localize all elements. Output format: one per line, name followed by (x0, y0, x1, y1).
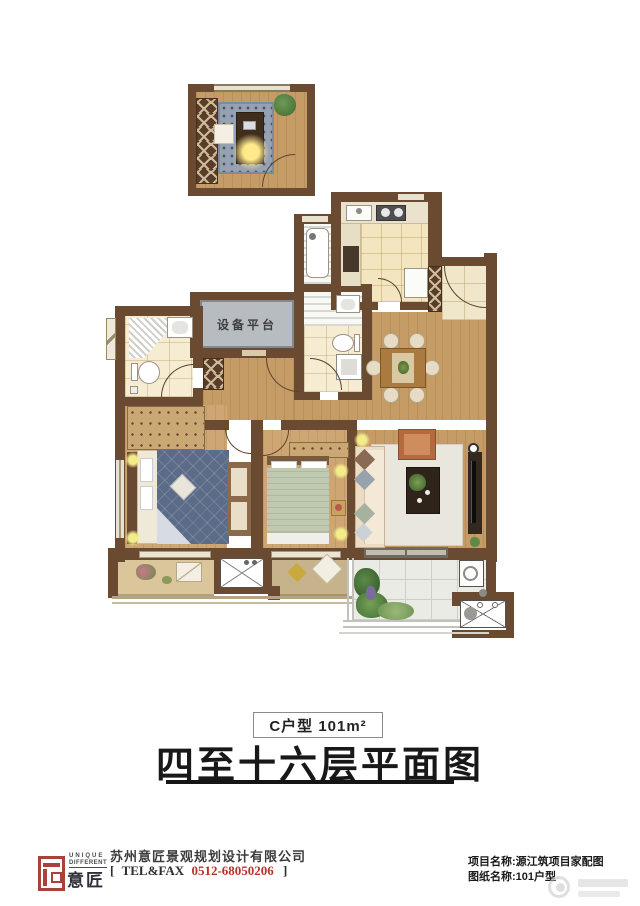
wall (442, 257, 488, 266)
table-plant (409, 474, 426, 491)
dining-floor-east (442, 320, 486, 420)
blanket (267, 468, 329, 538)
watermark (544, 872, 636, 902)
balcony-plant (162, 576, 172, 584)
dining-chair (383, 333, 399, 349)
window (116, 460, 124, 538)
window (302, 216, 328, 222)
logo-brand: 意匠 (67, 866, 105, 891)
cabinet-niche (231, 502, 247, 530)
bay-window (106, 318, 116, 360)
washer-knob (477, 602, 483, 608)
sliding-door (139, 551, 211, 558)
ceiling-light (125, 530, 141, 546)
washer-niche-wall (452, 592, 460, 606)
small-plant (470, 537, 480, 547)
lamp-glow (232, 134, 270, 170)
ceiling-light (354, 432, 370, 448)
flower-vase (335, 504, 342, 511)
logo-glyph-box (51, 872, 62, 883)
tel-line: [ TEL&FAX 0512-68050206 ] (110, 863, 287, 879)
tel-label: TEL&FAX (122, 863, 185, 878)
laptop (243, 121, 256, 130)
logo-english-line1: UNIQUE (69, 853, 104, 859)
wall (294, 392, 320, 400)
washer-knob (492, 602, 498, 608)
sliding-door-panel (407, 550, 446, 555)
page-title: 四至十六层平面图 (140, 734, 500, 780)
dining-chair (409, 333, 425, 349)
wall (428, 192, 442, 266)
wall (190, 292, 304, 300)
pipe-shaft (428, 266, 442, 312)
sink-basin (172, 321, 188, 334)
wall (362, 284, 372, 400)
ac-unit (220, 558, 264, 588)
ceiling-light (333, 526, 349, 542)
platform-vent (242, 350, 266, 356)
cup (417, 498, 422, 503)
wall-clock (468, 443, 479, 454)
tel-bracket-close: ] (283, 863, 287, 878)
potted-plant (274, 94, 296, 116)
floor-plan-page: 设备平台 (0, 0, 640, 906)
drawing-name-line: 图纸名称:101户型 (468, 868, 556, 884)
side-table (214, 124, 234, 144)
centerpiece (398, 361, 409, 374)
wall (486, 562, 496, 594)
tel-bracket-open: [ (110, 863, 114, 878)
sliding-door-panel (366, 550, 405, 555)
wall (281, 420, 355, 430)
railing (352, 558, 354, 620)
title-underline (166, 780, 454, 784)
logo-glyph-bar (43, 863, 60, 867)
ceiling-light (125, 452, 141, 468)
pillow (140, 458, 153, 482)
watermark-text-block (578, 879, 628, 887)
toilet-bowl (138, 361, 160, 384)
watermark-logo-dot (556, 883, 565, 892)
balcony-flowers (136, 564, 156, 580)
wall (251, 420, 263, 562)
pillow (140, 486, 153, 510)
equipment-platform: 设备平台 (200, 300, 294, 348)
dining-chair (383, 387, 399, 403)
wall (108, 548, 118, 598)
pipe (479, 589, 487, 597)
watermark-text-block (578, 891, 620, 897)
window (214, 84, 290, 92)
wall (115, 397, 203, 406)
floor-drain (130, 386, 138, 394)
toilet-bowl (332, 334, 354, 352)
wall (486, 253, 497, 562)
ac-knob (244, 560, 249, 565)
washer-door (463, 566, 478, 581)
wall (400, 302, 430, 310)
kitchen-appliance (343, 246, 359, 272)
logo-glyph-stem (43, 869, 47, 886)
coffee-table (406, 467, 440, 514)
blanket-fold (267, 532, 329, 544)
burner (394, 208, 403, 217)
project-name-line: 项目名称:源江筑项目家配图 (468, 853, 604, 869)
fridge (404, 268, 428, 298)
dining-chair (409, 387, 425, 403)
window (398, 194, 424, 200)
wardrobe (127, 406, 205, 450)
railing (347, 558, 349, 620)
corridor-floor (294, 400, 372, 420)
railing (339, 632, 489, 634)
balcony-grass (378, 602, 414, 620)
wall (193, 306, 203, 368)
ac-knob (252, 560, 257, 565)
sink-basin (341, 299, 355, 310)
balcony-pillows (176, 562, 202, 582)
wall (193, 388, 203, 397)
railing (112, 596, 352, 599)
hall-closet (203, 358, 224, 390)
burner (381, 208, 390, 217)
tv-screen (471, 461, 476, 523)
wall (338, 392, 372, 400)
wall (121, 306, 201, 316)
shower-tray (341, 359, 357, 375)
cabinet-niche (231, 468, 247, 496)
equipment-platform-label: 设备平台 (217, 316, 277, 333)
railing (112, 602, 352, 604)
cup (425, 490, 430, 495)
armchair-seat (404, 434, 430, 455)
shower-head (309, 233, 316, 240)
faucet (356, 208, 362, 214)
tel-number: 0512-68050206 (191, 863, 273, 878)
toilet (354, 334, 360, 352)
ceiling-light (333, 463, 349, 479)
balcony-flowers (366, 586, 376, 600)
toilet (131, 363, 138, 381)
unit-label: C户型 101m² (269, 715, 366, 736)
washer-drum (464, 607, 477, 620)
dining-chair (424, 360, 440, 376)
